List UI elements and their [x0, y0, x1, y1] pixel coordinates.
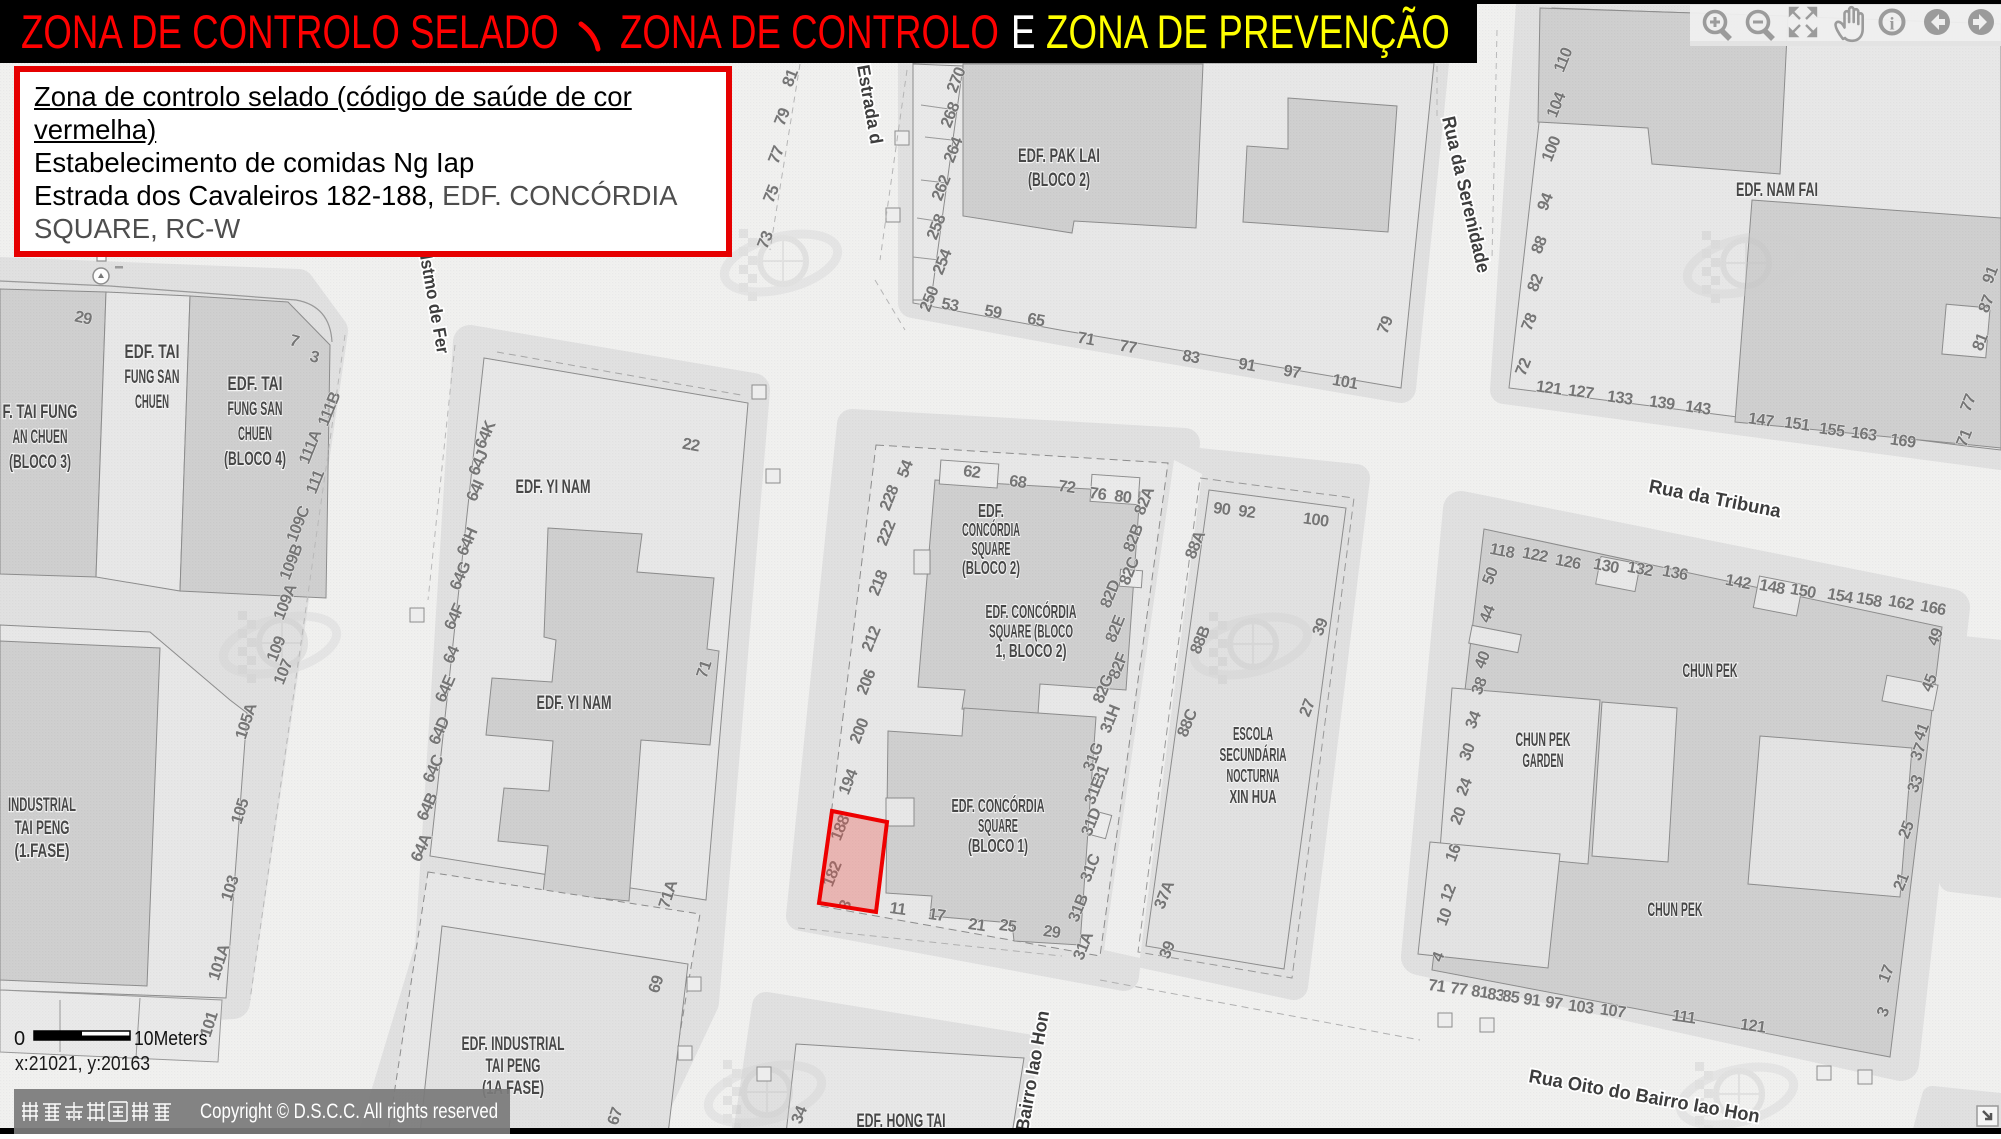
svg-text:INDUSTRIAL: INDUSTRIAL	[8, 795, 76, 816]
svg-text:EDF. CONCÓRDIA: EDF. CONCÓRDIA	[952, 795, 1045, 816]
svg-text:107: 107	[1599, 1000, 1627, 1021]
svg-text:EDF. INDUSTRIAL: EDF. INDUSTRIAL	[462, 1034, 565, 1055]
svg-text:CHUEN: CHUEN	[135, 392, 169, 413]
svg-text:(BLOCO 4): (BLOCO 4)	[224, 449, 286, 470]
svg-text:EDF. YI NAM: EDF. YI NAM	[516, 477, 591, 498]
svg-text:(BLOCO 1): (BLOCO 1)	[968, 835, 1028, 856]
svg-text:AN CHUEN: AN CHUEN	[13, 427, 68, 448]
svg-text:EDF. CONCÓRDIA: EDF. CONCÓRDIA	[986, 601, 1077, 622]
svg-text:CHUN PEK: CHUN PEK	[1648, 900, 1703, 921]
svg-text:121: 121	[1739, 1015, 1767, 1036]
svg-text:77: 77	[1449, 979, 1469, 999]
svg-text:EDF.: EDF.	[978, 501, 1004, 521]
svg-text:68: 68	[1008, 472, 1028, 492]
svg-text:SQUARE (BLOCO: SQUARE (BLOCO	[989, 622, 1073, 642]
svg-text:91: 91	[1522, 990, 1542, 1010]
svg-text:17: 17	[927, 905, 947, 925]
svg-text:139: 139	[1648, 392, 1676, 413]
svg-text:100: 100	[1302, 509, 1330, 530]
svg-text:163: 163	[1850, 423, 1878, 444]
svg-text:FUNG SAN: FUNG SAN	[228, 399, 283, 420]
svg-text:62: 62	[962, 462, 982, 482]
svg-text:72: 72	[1057, 477, 1077, 497]
svg-text:EDF. NAM FAI: EDF. NAM FAI	[1736, 180, 1818, 201]
svg-text:SECUNDÁRIA: SECUNDÁRIA	[1220, 744, 1287, 765]
svg-text:80: 80	[1113, 487, 1133, 507]
svg-text:121: 121	[1535, 377, 1563, 398]
svg-text:GARDEN: GARDEN	[1523, 751, 1564, 772]
svg-text:SQUARE: SQUARE	[972, 539, 1011, 559]
svg-text:76: 76	[1088, 484, 1108, 504]
svg-text:133: 133	[1606, 387, 1634, 408]
svg-text:25: 25	[998, 916, 1018, 936]
svg-text:F. TAI FUNG: F. TAI FUNG	[3, 402, 78, 423]
svg-text:169: 169	[1889, 430, 1917, 451]
svg-text:CONCÓRDIA: CONCÓRDIA	[962, 519, 1020, 540]
svg-text:EDF. PAK LAI: EDF. PAK LAI	[1018, 146, 1100, 167]
svg-text:EDF. YI NAM: EDF. YI NAM	[537, 693, 612, 714]
svg-text:127: 127	[1567, 381, 1595, 402]
svg-text:71: 71	[1427, 976, 1447, 996]
svg-text:CHUN PEK: CHUN PEK	[1516, 730, 1571, 751]
svg-text:97: 97	[1544, 993, 1564, 1013]
svg-text:(BLOCO 2): (BLOCO 2)	[1028, 170, 1090, 191]
svg-text:29: 29	[1042, 922, 1062, 942]
svg-text:11: 11	[888, 899, 907, 919]
svg-text:92: 92	[1237, 502, 1257, 522]
svg-text:FUNG SAN: FUNG SAN	[125, 367, 180, 388]
svg-text:(BLOCO 3): (BLOCO 3)	[9, 452, 71, 473]
svg-text:i: i	[1889, 14, 1894, 34]
svg-text:NOCTURNA: NOCTURNA	[1227, 765, 1280, 786]
svg-text:EDF. TAI: EDF. TAI	[228, 374, 283, 395]
svg-text:(1.FASE): (1.FASE)	[15, 841, 70, 862]
svg-text:ESCOLA: ESCOLA	[1233, 723, 1273, 744]
svg-text:90: 90	[1212, 499, 1232, 519]
svg-text:SQUARE: SQUARE	[978, 815, 1018, 836]
svg-text:111: 111	[1671, 1006, 1697, 1027]
svg-text:103: 103	[1567, 996, 1595, 1017]
svg-text:CHUEN: CHUEN	[238, 424, 272, 445]
svg-text:143: 143	[1684, 397, 1712, 418]
svg-text:1, BLOCO 2): 1, BLOCO 2)	[996, 641, 1067, 661]
svg-text:155: 155	[1818, 419, 1846, 440]
svg-text:EDF. TAI: EDF. TAI	[125, 342, 180, 363]
svg-text:85: 85	[1501, 987, 1521, 1007]
svg-text:(BLOCO 2): (BLOCO 2)	[962, 558, 1020, 578]
svg-text:XIN HUA: XIN HUA	[1230, 786, 1277, 807]
svg-text:TAI PENG: TAI PENG	[15, 818, 70, 839]
svg-text:151: 151	[1783, 413, 1811, 434]
svg-text:TAI PENG: TAI PENG	[486, 1056, 541, 1077]
svg-text:CHUN PEK: CHUN PEK	[1683, 661, 1738, 682]
svg-text:147: 147	[1747, 409, 1775, 430]
svg-text:21: 21	[967, 915, 987, 935]
